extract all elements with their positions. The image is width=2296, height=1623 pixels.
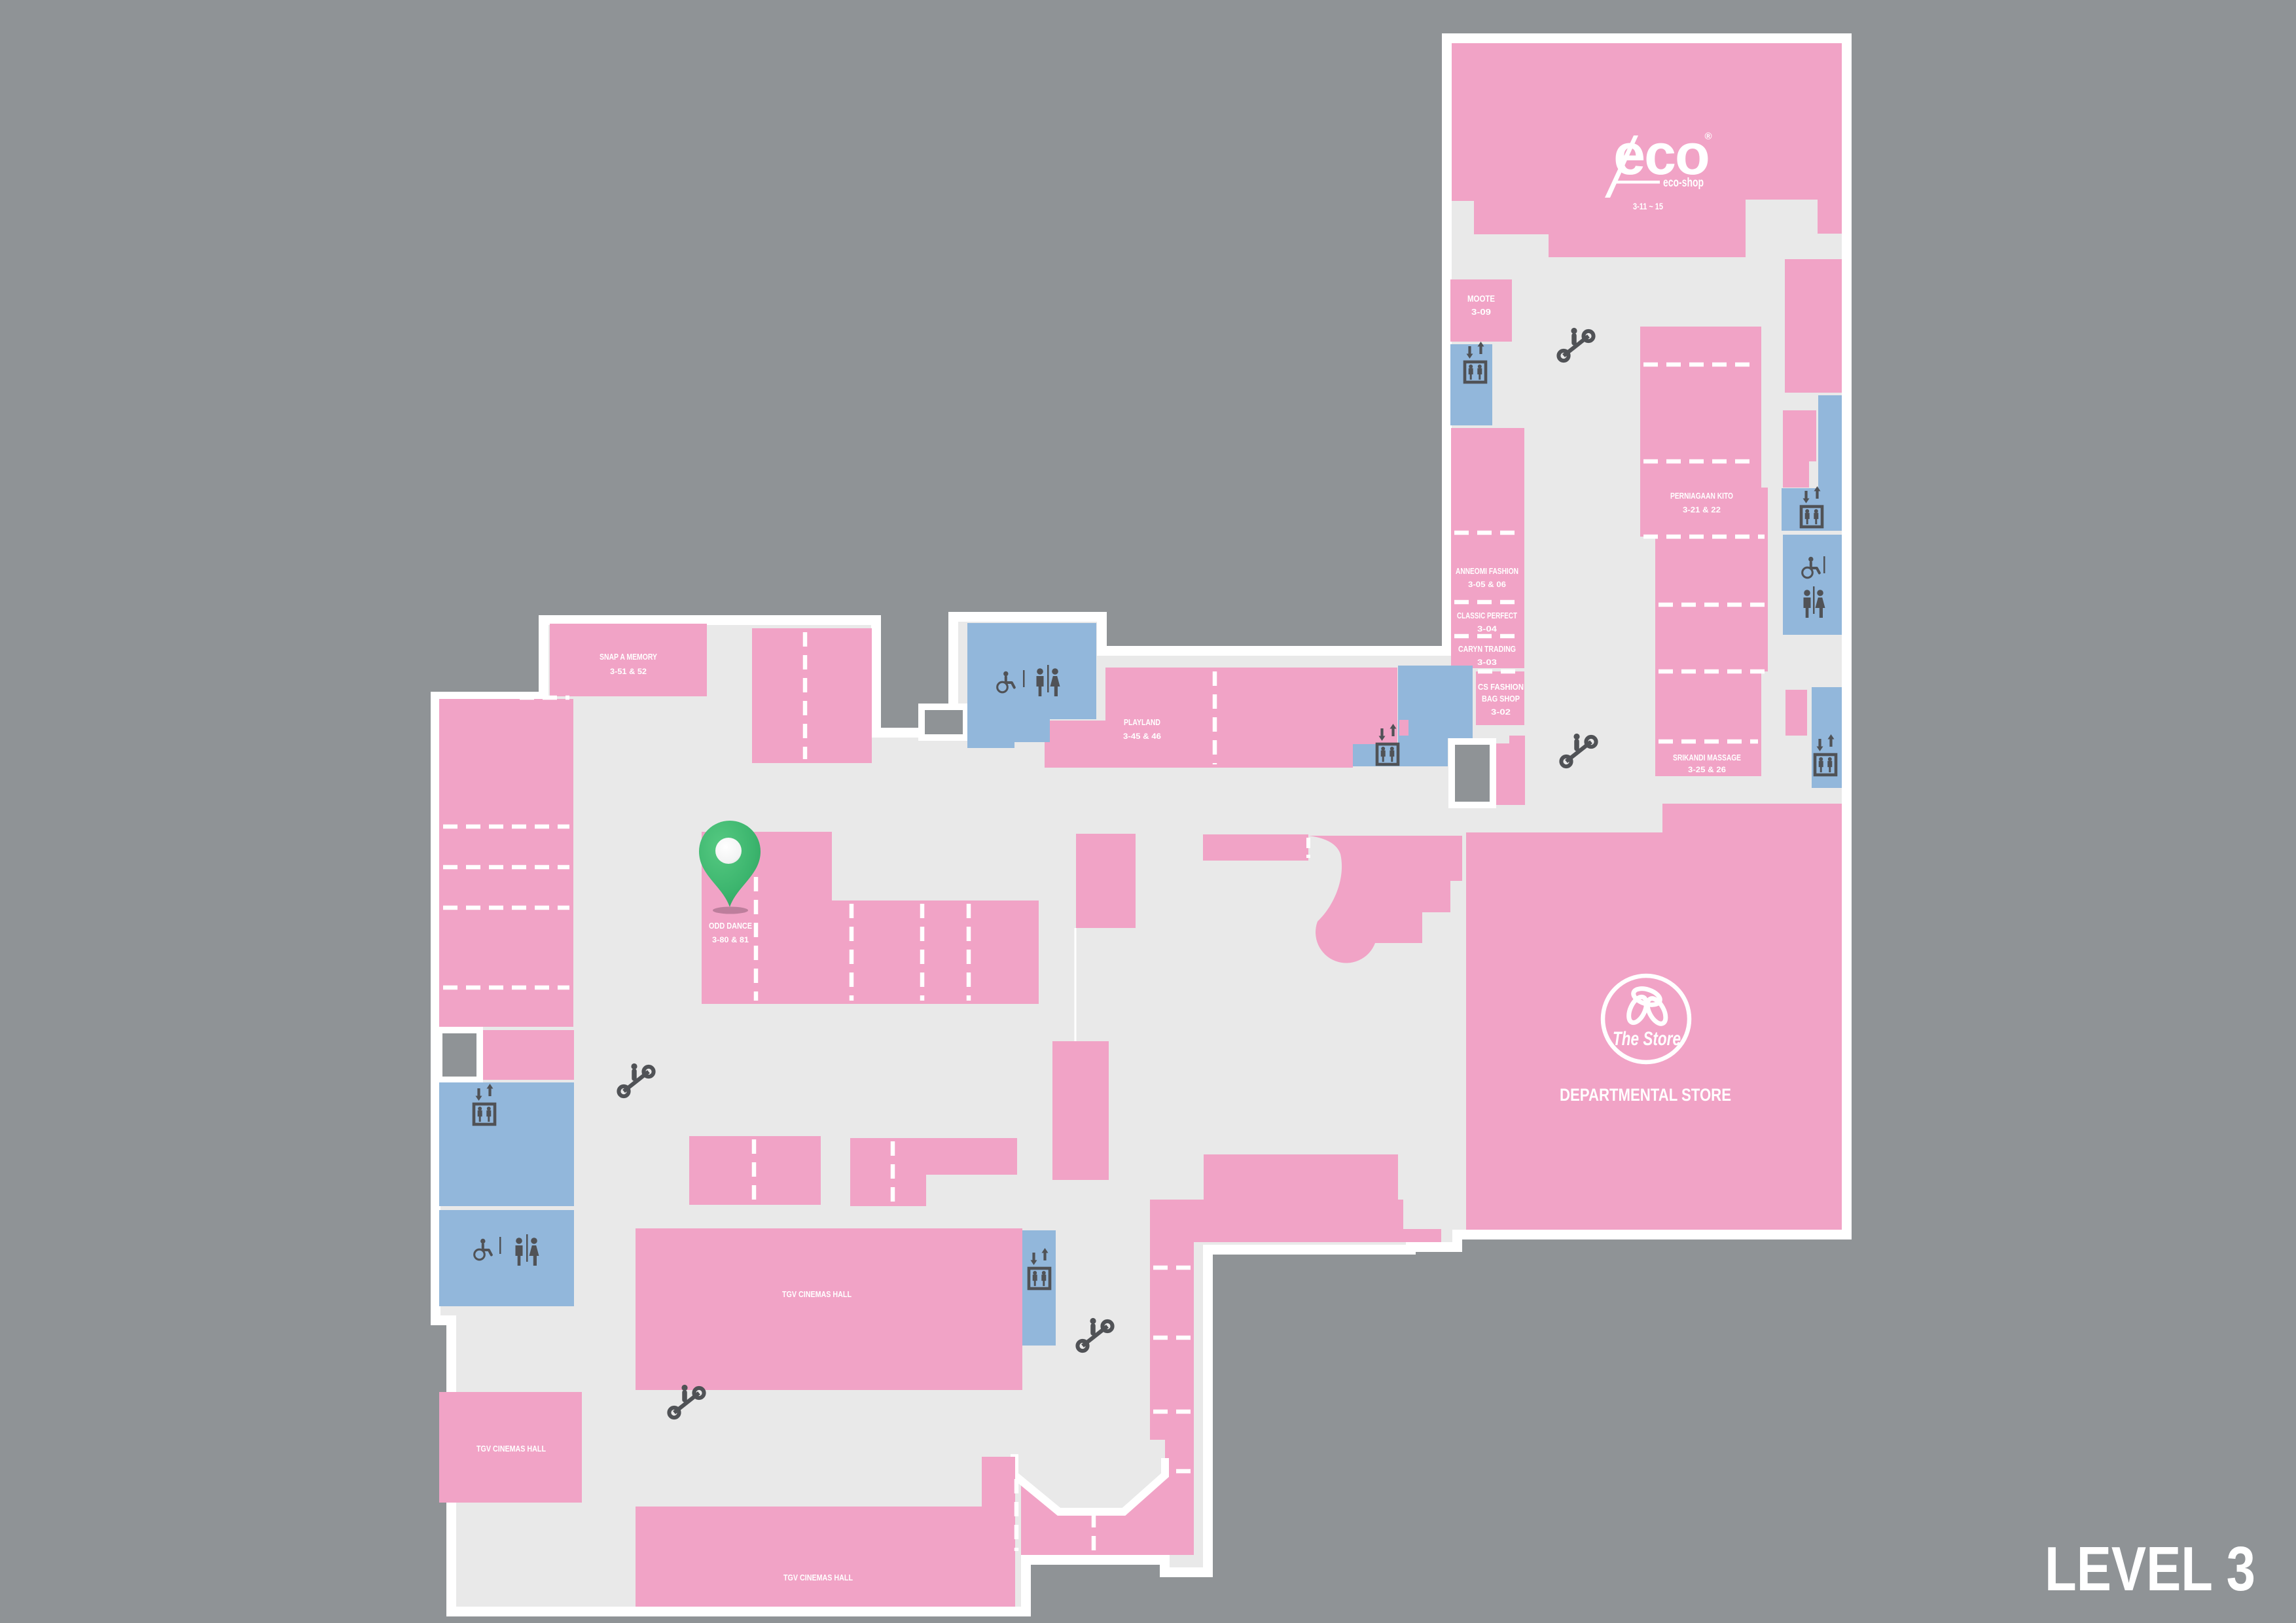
svg-text:PLAYLAND: PLAYLAND bbox=[1124, 717, 1160, 727]
svg-text:PERNIAGAAN KITO: PERNIAGAAN KITO bbox=[1670, 491, 1733, 501]
svg-text:3-11 ~ 15: 3-11 ~ 15 bbox=[1633, 201, 1663, 211]
svg-text:CS FASHION: CS FASHION bbox=[1478, 682, 1524, 692]
svg-text:TGV CINEMAS HALL: TGV CINEMAS HALL bbox=[782, 1289, 852, 1299]
svg-text:CLASSIC PERFECT: CLASSIC PERFECT bbox=[1457, 611, 1517, 620]
svg-text:3-25 & 26: 3-25 & 26 bbox=[1688, 765, 1726, 774]
svg-text:3-04: 3-04 bbox=[1477, 624, 1497, 633]
svg-text:®: ® bbox=[1704, 131, 1712, 142]
svg-text:BAG SHOP: BAG SHOP bbox=[1482, 694, 1520, 704]
svg-text:3-51 & 52: 3-51 & 52 bbox=[610, 667, 647, 676]
svg-text:3-03: 3-03 bbox=[1477, 658, 1497, 667]
svg-text:eco-shop: eco-shop bbox=[1663, 176, 1704, 190]
svg-text:MOOTE: MOOTE bbox=[1467, 293, 1495, 304]
svg-text:ODD DANCE: ODD DANCE bbox=[709, 921, 752, 931]
svg-text:CARYN TRADING: CARYN TRADING bbox=[1458, 644, 1516, 654]
svg-text:3-09: 3-09 bbox=[1471, 307, 1491, 317]
svg-text:SNAP A MEMORY: SNAP A MEMORY bbox=[600, 652, 657, 662]
svg-text:LEVEL 3: LEVEL 3 bbox=[2045, 1534, 2255, 1604]
svg-text:The Store: The Store bbox=[1613, 1028, 1681, 1050]
svg-text:SRIKANDI MASSAGE: SRIKANDI MASSAGE bbox=[1673, 753, 1741, 762]
svg-text:3-21 & 22: 3-21 & 22 bbox=[1683, 505, 1721, 514]
svg-text:3-80 & 81: 3-80 & 81 bbox=[712, 935, 749, 944]
svg-text:DEPARTMENTAL STORE: DEPARTMENTAL STORE bbox=[1560, 1085, 1731, 1105]
svg-text:3-02: 3-02 bbox=[1491, 707, 1511, 717]
svg-text:3-45 & 46: 3-45 & 46 bbox=[1123, 732, 1161, 741]
svg-text:TGV CINEMAS HALL: TGV CINEMAS HALL bbox=[476, 1444, 546, 1454]
svg-text:ANNEOMI FASHION: ANNEOMI FASHION bbox=[1456, 566, 1518, 576]
svg-text:3-05 & 06: 3-05 & 06 bbox=[1468, 580, 1506, 589]
svg-text:TGV CINEMAS HALL: TGV CINEMAS HALL bbox=[783, 1573, 853, 1582]
